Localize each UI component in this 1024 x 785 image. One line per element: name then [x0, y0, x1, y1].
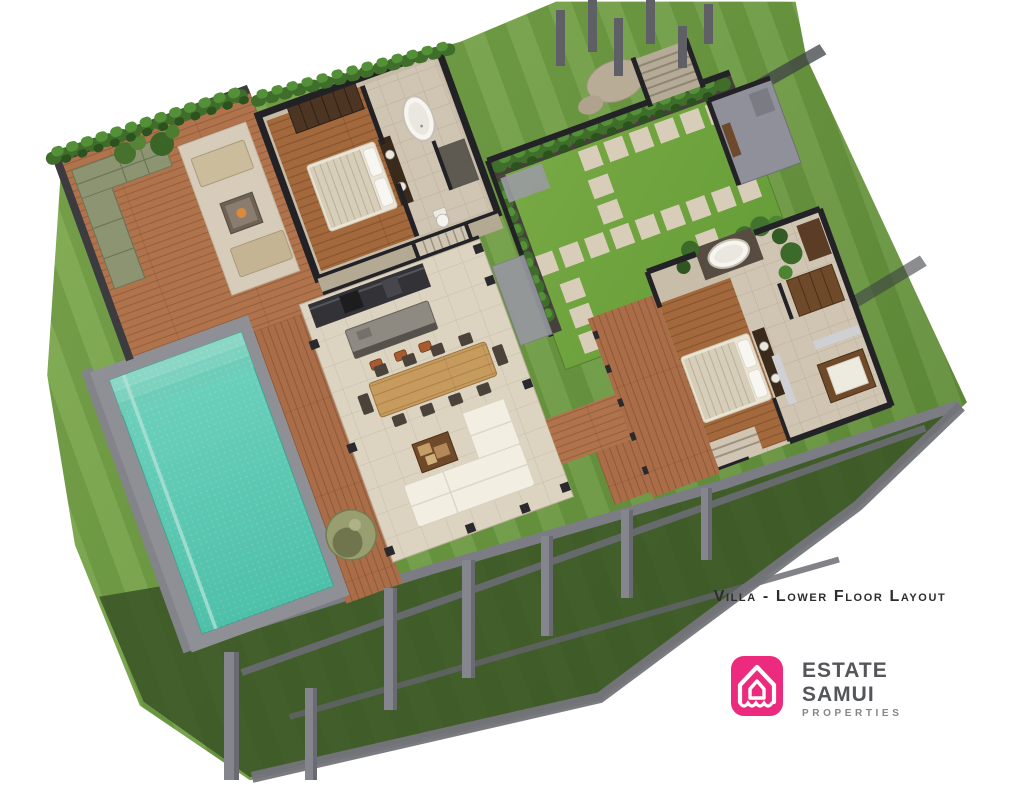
logo-word-estate: ESTATE [802, 659, 888, 682]
plan-title: Villa - Lower Floor Layout [714, 588, 947, 605]
house-icon [731, 656, 783, 716]
estate-samui-logo: ESTATE SAMUI PROPERTIES [731, 656, 902, 719]
logo-word-properties: PROPERTIES [802, 708, 902, 719]
logo-word-samui: SAMUI [802, 683, 875, 706]
floorplan-canvas: Villa - Lower Floor Layout ESTATE SAMUI … [0, 0, 1024, 785]
villa-floorplan-render: Villa - Lower Floor Layout ESTATE SAMUI … [0, 0, 1024, 785]
